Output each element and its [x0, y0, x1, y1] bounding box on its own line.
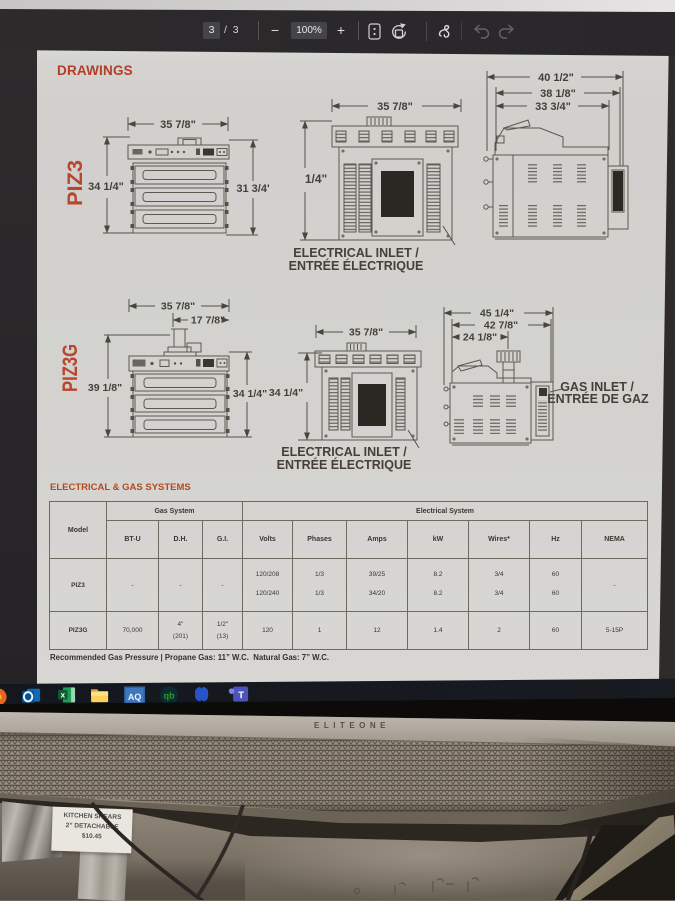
svg-text:ELECTRICAL INLET /: ELECTRICAL INLET / — [293, 246, 419, 260]
svg-text:ENTRÉE ÉLECTRIQUE: ENTRÉE ÉLECTRIQUE — [277, 457, 412, 472]
svg-text:ENTRÉE DE GAZ: ENTRÉE DE GAZ — [547, 391, 649, 406]
svg-text:AQ: AQ — [128, 692, 142, 702]
svg-text:34 1/4": 34 1/4" — [233, 388, 267, 400]
svg-text:17 7/8": 17 7/8" — [191, 315, 225, 327]
svg-text:T: T — [238, 690, 244, 701]
svg-text:x: x — [61, 690, 66, 699]
svg-text:42 7/8": 42 7/8" — [484, 320, 518, 332]
svg-text:38 1/8": 38 1/8" — [540, 88, 576, 100]
svg-text:40 1/2": 40 1/2" — [538, 72, 574, 84]
svg-text:24 1/8": 24 1/8" — [463, 332, 497, 344]
svg-text:45 1/4": 45 1/4" — [480, 308, 514, 320]
svg-text:35 7/8": 35 7/8" — [160, 119, 196, 131]
svg-text:ELECTRICAL INLET /: ELECTRICAL INLET / — [281, 445, 407, 459]
svg-text:1/4": 1/4" — [305, 172, 327, 186]
svg-text:ENTRÉE ÉLECTRIQUE: ENTRÉE ÉLECTRIQUE — [289, 258, 424, 273]
svg-text:qb: qb — [164, 691, 176, 701]
svg-text:34 1/4": 34 1/4" — [269, 387, 303, 399]
svg-text:34 1/4": 34 1/4" — [88, 181, 124, 193]
svg-text:35 7/8": 35 7/8" — [161, 301, 195, 313]
svg-text:31 3/4': 31 3/4' — [236, 183, 270, 195]
svg-text:33 3/4": 33 3/4" — [535, 101, 571, 113]
svg-text:39 1/8": 39 1/8" — [88, 382, 122, 394]
svg-text:35 7/8": 35 7/8" — [349, 327, 383, 339]
svg-text:PIZ3: PIZ3 — [64, 160, 87, 206]
svg-text:PIZ3G: PIZ3G — [59, 344, 82, 392]
svg-text:35 7/8": 35 7/8" — [377, 101, 413, 113]
